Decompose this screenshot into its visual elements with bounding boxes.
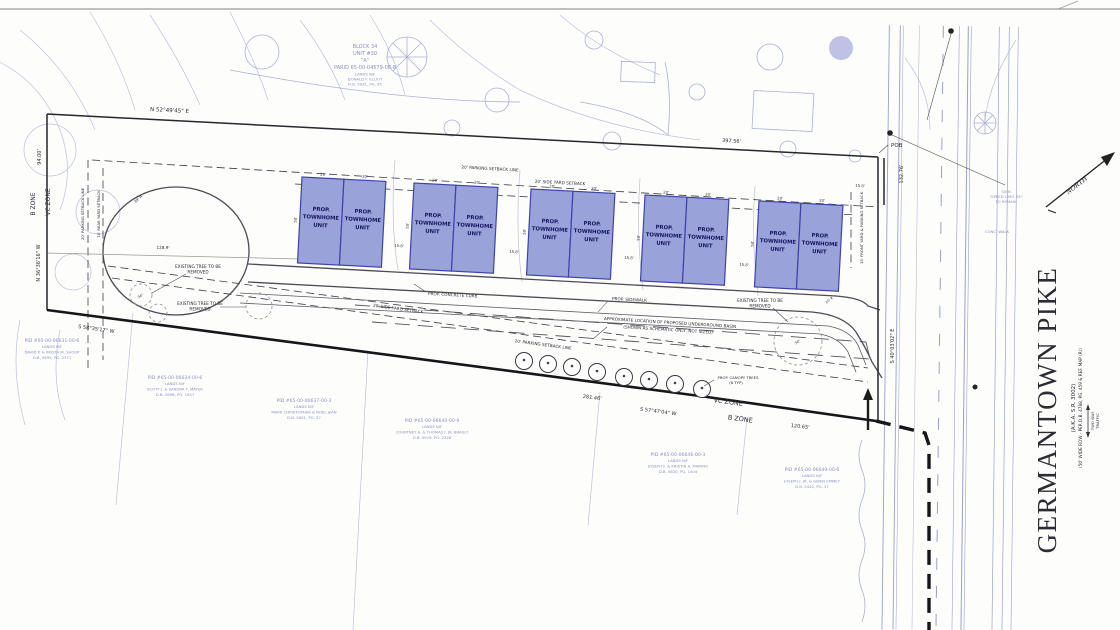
svg-text:50': 50' (750, 241, 755, 247)
svg-text:UNIT: UNIT (812, 249, 827, 256)
street-row-label: (50' WIDE ROW - PER D.B. 4788, PG. 459 &… (1078, 348, 1083, 468)
tree-remove-note-2: EXISTING TREE TO BE (177, 301, 223, 306)
roadside-notes: SIGN "SPEED LIMIT 35" TO REMAIN CONC. WA… (985, 189, 1023, 234)
parcel-block-text: BLOCK 34 UNIT #30 "A" PARID 65-00-04579-… (334, 44, 396, 87)
svg-text:20': 20' (663, 189, 669, 194)
rear-yard-label: 10' REAR YARD SETBACK (96, 190, 101, 238)
svg-text:15.8': 15.8' (509, 249, 519, 254)
germantown-pike-road-lines (882, 25, 1018, 630)
svg-text:D.B. 5801, PG. 37: D.B. 5801, PG. 37 (287, 415, 321, 420)
exit-radius-dim: 20' R (825, 296, 835, 305)
svg-text:REMOVED: REMOVED (749, 304, 770, 309)
svg-text:50': 50' (522, 229, 527, 235)
svg-text:JOSEPH F. & KRISTIN A. MARINO: JOSEPH F. & KRISTIN A. MARINO (647, 464, 708, 469)
svg-text:PROP.: PROP. (811, 233, 829, 240)
svg-text:UNIT: UNIT (584, 237, 599, 244)
townhome-pair-4: PROP. TOWNHOME UNIT PROP. TOWNHOME UNIT … (634, 188, 730, 285)
svg-text:LANDS N/F: LANDS N/F (165, 381, 185, 386)
svg-text:"A": "A" (361, 58, 369, 64)
right-road-bearing-label: S 40°03'02" E (890, 329, 896, 364)
unit-label: PROP. (312, 207, 330, 214)
svg-text:TRAFFIC: TRAFFIC (1095, 413, 1100, 430)
svg-text:PROP.: PROP. (655, 225, 673, 232)
bulb-radius-dim: 39' R (133, 194, 144, 204)
utility-poles (884, 28, 1005, 389)
svg-text:UNIT: UNIT (656, 241, 671, 248)
conc-walk-note: CONC. WALK (985, 229, 1010, 234)
townhome-pair-5: PROP. TOWNHOME UNIT PROP. TOWNHOME UNIT … (748, 194, 844, 291)
svg-text:REMOVED: REMOVED (189, 307, 210, 312)
sunburst-tree-icon (387, 37, 427, 77)
svg-text:UNIT: UNIT (355, 225, 370, 232)
svg-text:JOSEPH J. JR. & GWEN EMMEY: JOSEPH J. JR. & GWEN EMMEY (783, 479, 840, 484)
street-name-label: GERMANTOWN PIKE (1032, 267, 1062, 554)
vc-zone-road-label: VC ZONE (713, 396, 743, 408)
curb-note: PROP. CONCRETE CURB (428, 291, 478, 299)
north-arrow: NORTH (1046, 152, 1115, 213)
svg-text:20': 20' (591, 186, 597, 191)
svg-text:20': 20' (705, 192, 711, 197)
right-length-label: 132.76' (899, 165, 905, 184)
parking-setback-top-label: 20' PARKING SETBACK LINE (461, 165, 519, 173)
svg-text:20': 20' (362, 174, 368, 179)
svg-text:LANDS N/F: LANDS N/F (422, 424, 442, 429)
front-gap-dim: 15.8' (855, 183, 865, 188)
top-bearing-label: N 52°49'45" E (150, 107, 190, 115)
svg-text:20': 20' (819, 198, 825, 203)
vc-zone-label: VC ZONE (45, 188, 52, 216)
parking-setback-left-label: 20' PARKING SETBACK LINE (80, 187, 85, 240)
svg-text:D.B. 5442, PG. 37: D.B. 5442, PG. 37 (795, 484, 829, 489)
tree-size-label: 34" (794, 339, 801, 346)
bottom-bearing-east-label: S 57°47'04" W (640, 407, 677, 418)
townhome-pair-1: PROP. TOWNHOME UNIT PROP. TOWNHOME UNIT … (291, 170, 387, 267)
townhome-pair-2: PROP. TOWNHOME UNIT PROP. TOWNHOME UNIT … (403, 176, 499, 273)
svg-text:DAVID P. & KRISTA M. SHOUP: DAVID P. & KRISTA M. SHOUP (25, 350, 81, 355)
svg-text:UNIT: UNIT (313, 223, 328, 230)
svg-text:PROP.: PROP. (354, 209, 372, 216)
svg-text:D.B. 5695, PG. 2371: D.B. 5695, PG. 2371 (33, 355, 72, 360)
top-length-label: 397.56' (722, 138, 741, 145)
svg-text:PROP.: PROP. (541, 219, 559, 226)
svg-text:UNIT: UNIT (770, 247, 785, 254)
bottom-bearing-west-label: S 58°35'17" W (78, 324, 115, 335)
driveway-arrow (863, 388, 873, 430)
svg-text:PROP.: PROP. (424, 213, 442, 220)
svg-text:PROP.: PROP. (697, 227, 715, 234)
bulb-width-dim: 128.9' (156, 245, 169, 250)
svg-text:COURTNEY A. & THOMAS J. JR. BR: COURTNEY A. & THOMAS J. JR. BRAULT (396, 430, 469, 435)
svg-text:D.B. 5919, PG. 2328: D.B. 5919, PG. 2328 (413, 435, 452, 440)
b-zone-road-label: B ZONE (727, 413, 753, 424)
unit-width-dim: 20' (320, 171, 326, 176)
left-length-label: 94.00' (37, 149, 43, 165)
svg-text:SCOTT J. & SANDRA T. MAYER: SCOTT J. & SANDRA T. MAYER (147, 387, 203, 392)
site-plan-drawing: 34" 34" PROP. TOWNHOME UNIT PROP. TOWNHO… (0, 0, 1120, 630)
svg-text:PROP.: PROP. (769, 231, 787, 238)
neighbor-parcel-5: PID #65-00-06646-00-3 LANDS N/F JOSEPH F… (647, 452, 708, 474)
svg-text:BLOCK 34: BLOCK 34 (353, 44, 378, 50)
svg-text:15.8': 15.8' (739, 262, 749, 267)
front-yard-label: 15' FRONT YARD & PARKING SETBACK (859, 191, 864, 264)
tree-size-label: 34" (137, 293, 144, 300)
svg-text:PROP.: PROP. (583, 221, 601, 228)
left-bearing-label: N 36°36'16" W (36, 244, 42, 281)
svg-text:20': 20' (432, 177, 438, 182)
svg-text:20': 20' (777, 195, 783, 200)
street-aka-label: (A.K.A. S.R. 3002) (1071, 384, 1077, 433)
pike-title: GERMANTOWN PIKE (A.K.A. S.R. 3002) (50' … (1032, 267, 1100, 554)
svg-text:15.8': 15.8' (624, 255, 634, 260)
tree-remove-note-1: EXISTING TREE TO BE (175, 264, 221, 269)
side-yard-top-label: 20' SIDE YARD SETBACK (535, 179, 586, 187)
bottom-length-mid-label: 281.46' (582, 394, 601, 402)
neighbor-parcel-6: PID #65-00-06649-00-6 LANDS N/F JOSEPH J… (783, 467, 840, 489)
b-zone-label: B ZONE (30, 192, 37, 215)
svg-text:50': 50' (405, 223, 410, 229)
svg-text:PARID 65-00-04579-00-8: PARID 65-00-04579-00-8 (334, 65, 396, 71)
svg-text:MARK CHRISTOPHER & NOEL JEAN: MARK CHRISTOPHER & NOEL JEAN (271, 410, 336, 415)
neighbor-parcel-3: PID #65-00-06637-00-3 LANDS N/F MARK CHR… (271, 398, 336, 420)
side-yard-bottom-label: 20' SIDE YARD SETBACK (373, 303, 424, 315)
svg-text:UNIT: UNIT (542, 235, 557, 242)
site-plan-sheet: 34" 34" PROP. TOWNHOME UNIT PROP. TOWNHO… (0, 0, 1120, 630)
svg-text:D.B. 5698, PG. 1557: D.B. 5698, PG. 1557 (156, 392, 195, 397)
unit-depth-dim: 50' (293, 217, 298, 223)
pob-label: POB (891, 143, 903, 149)
svg-text:(8 TYP): (8 TYP) (729, 380, 743, 385)
existing-conditions-linework (0, 12, 1016, 630)
svg-text:UNIT: UNIT (698, 243, 713, 250)
svg-text:20': 20' (474, 180, 480, 185)
tree-remove-note-3: EXISTING TREE TO BE (737, 298, 783, 303)
svg-text:UNIT: UNIT (425, 229, 440, 236)
svg-text:TO REMAIN: TO REMAIN (994, 199, 1017, 204)
neighbor-parcel-2: PID #65-00-06634-00-6 LANDS N/F SCOTT J.… (147, 375, 203, 397)
neighbor-parcel-1: PID #65-00-06631-00-6 LANDS N/F DAVID P.… (25, 338, 81, 360)
scan-edge (0, 1, 1120, 9)
svg-text:REMOVED: REMOVED (187, 270, 208, 275)
svg-text:50': 50' (636, 235, 641, 241)
townhome-pair-3: PROP. TOWNHOME UNIT PROP. TOWNHOME UNIT … (520, 182, 616, 279)
bottom-length-east-label: 120.65' (790, 423, 809, 431)
neighbor-parcel-4: PID #65-00-06640-00-9 LANDS N/F COURTNEY… (396, 418, 469, 440)
unit-gap-dim: 15.8' (394, 243, 404, 248)
svg-text:UNIT: UNIT (467, 231, 482, 238)
svg-text:LANDS N/F: LANDS N/F (294, 404, 314, 409)
svg-text:PROP.: PROP. (466, 215, 484, 222)
svg-text:LANDS N/F: LANDS N/F (668, 458, 688, 463)
svg-text:D.B. 5620, PG. 1404: D.B. 5620, PG. 1404 (659, 469, 698, 474)
north-label: NORTH (1063, 174, 1089, 197)
svg-text:LANDS N/F: LANDS N/F (802, 473, 822, 478)
svg-text:LANDS N/F: LANDS N/F (42, 344, 62, 349)
svg-text:D.B. 5931, PG. 35: D.B. 5931, PG. 35 (348, 82, 382, 87)
svg-text:UNIT #30: UNIT #30 (353, 51, 377, 57)
